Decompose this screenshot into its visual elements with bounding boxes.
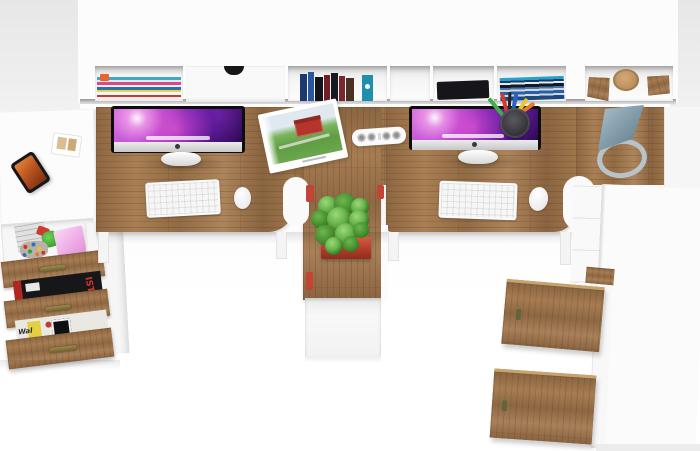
plant-leaf — [343, 236, 359, 252]
imac-left — [111, 106, 245, 153]
apple-logo-icon — [175, 144, 180, 149]
drawer-unit-floor-shadow — [0, 360, 120, 370]
socket — [382, 131, 392, 141]
book-with-label — [362, 75, 373, 101]
dock-bar — [442, 134, 504, 138]
imac-stand — [458, 150, 498, 164]
imac-chin — [114, 142, 242, 152]
wood-disc — [613, 69, 639, 91]
desk-leg — [388, 232, 399, 261]
imac-chin — [412, 140, 538, 150]
book-label-dot — [365, 84, 370, 89]
magazine-pile — [97, 74, 181, 100]
door-key — [502, 400, 508, 411]
red-sliver-right — [377, 185, 384, 199]
socket — [357, 133, 367, 143]
red-sliver-lower — [306, 272, 313, 290]
hutch-push-drawer — [186, 66, 285, 102]
imac-screen — [114, 109, 242, 142]
drawer-handle — [40, 264, 66, 272]
book-spine — [308, 72, 314, 101]
strip-switch — [378, 133, 381, 140]
finger-notch — [224, 66, 244, 75]
magazine-white-bit — [25, 282, 40, 292]
desk-cutout-left — [283, 177, 309, 226]
drawer-handle — [49, 345, 77, 353]
scene-root: IST Wal — [0, 0, 700, 451]
cabinet-floor-strip — [596, 444, 700, 451]
dock-bar — [146, 136, 210, 140]
keyboard-left — [145, 179, 221, 218]
socket — [367, 132, 377, 142]
black-document-case — [437, 80, 490, 100]
imac-stand — [161, 152, 201, 166]
book-spine — [324, 75, 330, 101]
mouse-left — [234, 187, 251, 209]
door-key — [515, 309, 521, 320]
cubby-magazines — [95, 66, 183, 101]
desk-leg — [276, 232, 287, 259]
magazine-cover-mark — [100, 74, 109, 81]
red-sliver-left — [306, 185, 314, 202]
book-spine — [331, 73, 338, 101]
book-spine — [346, 78, 354, 101]
plant-leaf — [353, 222, 369, 238]
card-chip — [67, 138, 77, 151]
book-spine — [339, 76, 345, 101]
pedestal-base — [305, 298, 381, 356]
book-spine — [300, 74, 307, 101]
book-spine — [315, 77, 323, 101]
socket — [392, 130, 402, 140]
drawer-handle — [45, 304, 71, 312]
right-side-panel — [664, 107, 700, 187]
card-tray — [51, 132, 83, 158]
apple-logo-icon — [472, 142, 477, 147]
cabinet-door-lower — [490, 369, 597, 445]
plant-leaf — [325, 237, 343, 255]
door-edge-sliver — [585, 267, 614, 285]
desk-leg — [98, 232, 109, 263]
mesh-pencil-cup — [500, 108, 530, 138]
keyboard-right — [438, 181, 517, 221]
cabinet-door-upper — [501, 279, 604, 352]
cubby-empty — [390, 66, 430, 101]
red-barn — [294, 115, 324, 137]
cubby-case — [433, 66, 494, 101]
pedestal-floor-shadow — [305, 356, 381, 363]
desk-leg — [560, 232, 571, 265]
card-chip — [56, 137, 67, 150]
